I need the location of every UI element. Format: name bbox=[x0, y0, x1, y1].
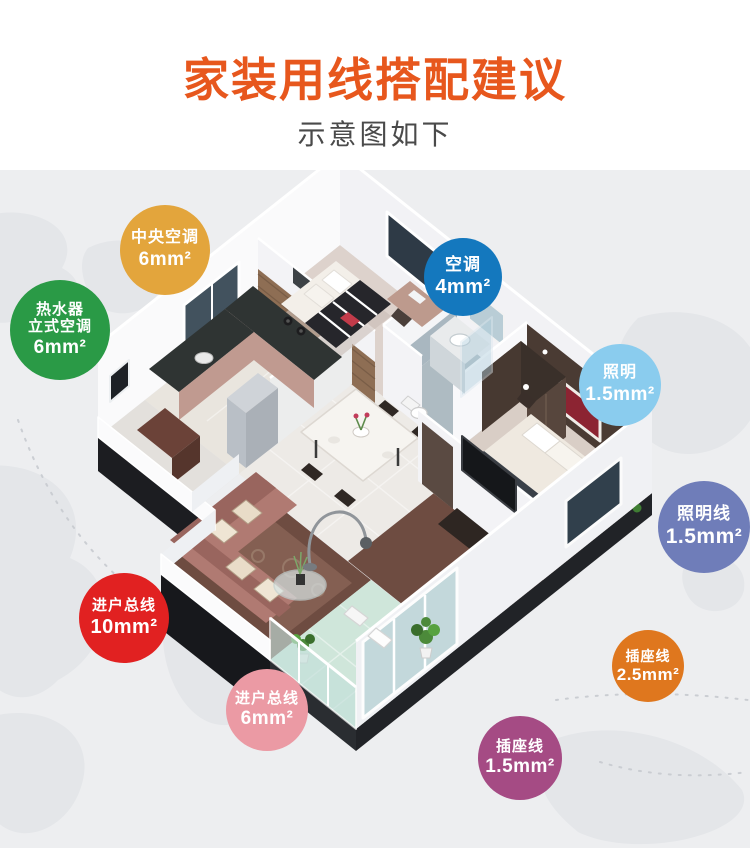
badge-value: 1.5mm² bbox=[666, 525, 743, 549]
page-subtitle: 示意图如下 bbox=[0, 113, 750, 153]
badge-label: 照明线 bbox=[677, 504, 731, 524]
header: 家装用线搭配建议 示意图如下 bbox=[0, 0, 750, 170]
badge-value: 6mm² bbox=[34, 337, 87, 359]
scene bbox=[0, 170, 750, 848]
badge-main-incoming-line: 进户总线 10mm² bbox=[79, 573, 169, 663]
badge-label: 进户总线 bbox=[92, 597, 156, 614]
badge-value: 10mm² bbox=[91, 616, 158, 639]
badge-label: 热水器 立式空调 bbox=[28, 301, 92, 336]
page-title: 家装用线搭配建议 bbox=[0, 44, 750, 110]
badge-label: 插座线 bbox=[626, 648, 671, 664]
badge-value: 1.5mm² bbox=[585, 384, 655, 406]
badge-incoming-line: 进户总线 6mm² bbox=[226, 669, 308, 751]
badge-socket-line-25: 插座线 2.5mm² bbox=[612, 630, 684, 702]
badge-value: 1.5mm² bbox=[485, 756, 555, 778]
badge-value: 6mm² bbox=[139, 249, 192, 271]
badge-label: 进户总线 bbox=[235, 690, 299, 707]
badge-central-ac: 中央空调 6mm² bbox=[120, 205, 210, 295]
badge-water-heater-ac: 热水器 立式空调 6mm² bbox=[10, 280, 110, 380]
badge-lighting: 照明 1.5mm² bbox=[579, 344, 661, 426]
badge-value: 2.5mm² bbox=[617, 665, 680, 685]
badge-label: 照明 bbox=[603, 364, 637, 383]
badge-value: 4mm² bbox=[435, 276, 490, 299]
infographic-page: 家装用线搭配建议 示意图如下 bbox=[0, 0, 750, 848]
badge-ac: 空调 4mm² bbox=[424, 238, 502, 316]
badge-lighting-line: 照明线 1.5mm² bbox=[658, 481, 750, 573]
badge-label: 插座线 bbox=[496, 738, 544, 755]
badge-socket-line-15: 插座线 1.5mm² bbox=[478, 716, 562, 800]
badge-label: 中央空调 bbox=[131, 229, 199, 248]
badge-value: 6mm² bbox=[241, 708, 294, 730]
badge-label: 空调 bbox=[445, 255, 481, 275]
